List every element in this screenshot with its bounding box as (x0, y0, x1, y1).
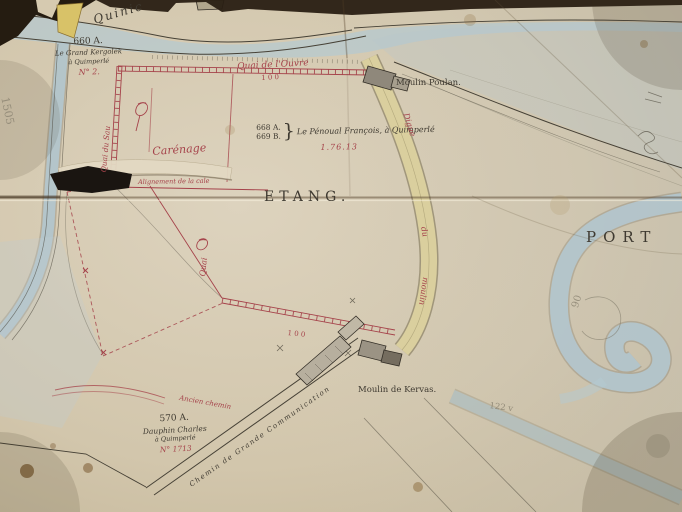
label-dim-100: 1 0 0 (287, 329, 306, 339)
label-digue-word2: du (419, 226, 430, 238)
label-etang: ETANG. (264, 189, 350, 205)
label-moulin-kervas: Moulin de Kervas. (358, 386, 436, 396)
label-quai-ouvre-length: 1 0 0 (261, 73, 279, 82)
label-port: PORT (586, 229, 657, 246)
label-alignement-cale: Alignement de la cale (138, 178, 210, 187)
parcel-668-number-b: 669 B. (256, 132, 281, 141)
map-photo: Quinic 660 A. Le Grand Kergolek à Quimpe… (0, 0, 682, 512)
parcel-note-660: 660 A. Le Grand Kergolek à Quimperlé N° … (46, 35, 131, 80)
parcel-668-brace: } (283, 121, 295, 143)
parcel-note-570: 570 A. Dauphin Charles à Quimperlé N° 17… (126, 411, 224, 457)
label-moulin-poulan: Moulin Poulan. (396, 79, 461, 89)
